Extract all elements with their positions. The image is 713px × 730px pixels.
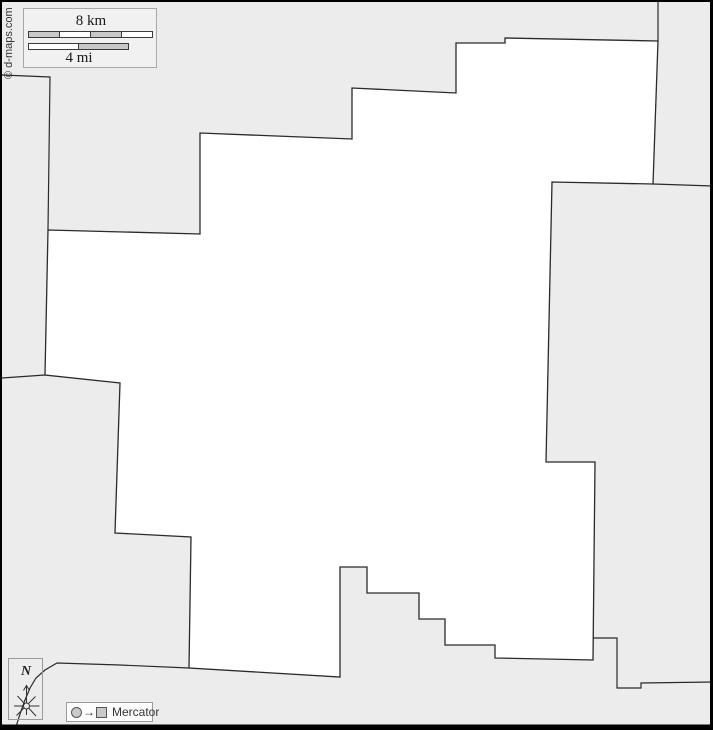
map-image: [0, 0, 713, 730]
compass-n-label: N: [20, 664, 32, 679]
projection-box: → Mercator: [66, 702, 153, 722]
compass-rose: N: [8, 658, 43, 720]
projected-square-icon: [96, 707, 107, 718]
north-arrow-icon: N: [9, 659, 42, 719]
scale-km-label: 8 km: [24, 14, 158, 29]
globe-circle-icon: [71, 707, 82, 718]
compass-hub: [24, 703, 30, 709]
copyright-text: © d-maps.com: [3, 7, 15, 79]
map-canvas: 8 km 4 mi © d-maps.com N → Mercator: [0, 0, 713, 730]
scale-bar-box: 8 km 4 mi: [23, 8, 157, 68]
arrow-icon: →: [83, 707, 95, 717]
scale-bars: [28, 31, 154, 51]
scale-mi-label: 4 mi: [24, 51, 134, 66]
projection-label: Mercator: [112, 705, 159, 719]
